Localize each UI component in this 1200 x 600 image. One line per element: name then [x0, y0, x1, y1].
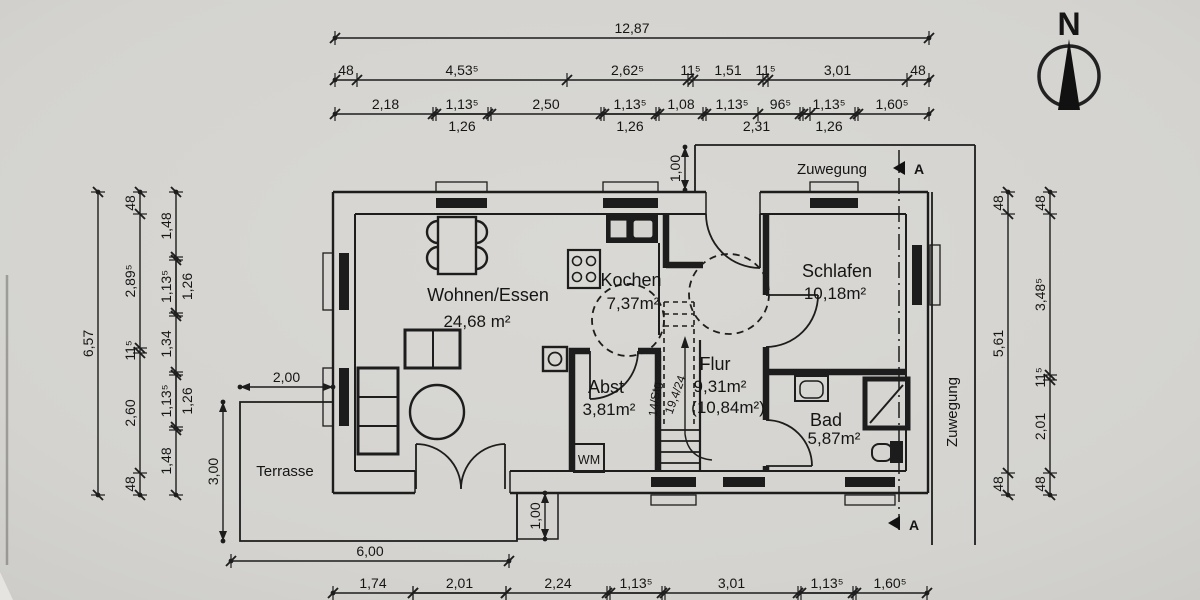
- dim-label: 1,26: [616, 118, 643, 134]
- room-label-schlafen: Schlafen: [802, 261, 872, 281]
- dim-label: 2,60: [122, 399, 138, 426]
- dim-label: 1,48: [158, 212, 174, 239]
- dim-label: 1,13⁵: [445, 96, 478, 112]
- dim-label: 11⁵: [1032, 367, 1048, 387]
- dim-label: 1,13⁵: [613, 96, 646, 112]
- dim-label: 4,53⁵: [445, 62, 478, 78]
- dim-label: 1,74: [359, 575, 386, 591]
- dim-label: 48: [990, 195, 1006, 211]
- room-area-flur: 9,31m²: [694, 377, 747, 396]
- room-label-wohnen: Wohnen/Essen: [427, 285, 549, 305]
- section-letter-top: A: [914, 161, 924, 177]
- dim-label: 48: [1032, 476, 1048, 492]
- room-area-kochen: 7,37m²: [607, 294, 660, 313]
- dim-label: 6,57: [80, 330, 96, 357]
- window-icon: [603, 198, 658, 208]
- dim-label: 2,50: [532, 96, 559, 112]
- window-icon: [912, 245, 922, 305]
- dim-label: 1,13⁵: [810, 575, 843, 591]
- dim-label: 2,00: [273, 369, 300, 385]
- dim-label: 1,13⁵: [715, 96, 748, 112]
- dim-label: 11⁵: [680, 62, 700, 78]
- dim-label: 1,13⁵: [812, 96, 845, 112]
- dim-label: 1,60⁵: [875, 96, 908, 112]
- dim-label: 2,01: [446, 575, 473, 591]
- section-letter-bottom: A: [909, 517, 919, 533]
- room-label-abst: Abst: [588, 377, 624, 397]
- dim-label: 11⁵: [755, 62, 775, 78]
- dim-label: 1,26: [448, 118, 475, 134]
- dim-label: 1,13⁵: [158, 384, 174, 417]
- room-label-flur: Flur: [700, 354, 731, 374]
- window-icon: [436, 198, 487, 208]
- dim-label: 1,13⁵: [619, 575, 652, 591]
- walkway-label-right: Zuwegung: [944, 377, 961, 447]
- dim-label: 2,31: [743, 118, 770, 134]
- dim-label: 6,00: [356, 543, 383, 559]
- dim-label: 48: [338, 62, 354, 78]
- dim-label: 48: [910, 62, 926, 78]
- window-icon: [845, 477, 895, 487]
- washing-machine-label: WM: [578, 453, 600, 467]
- dim-label: 96⁵: [770, 96, 791, 112]
- dim-label: 2,62⁵: [611, 62, 644, 78]
- dim-label: 1,26: [179, 273, 195, 300]
- dim-label: 2,18: [372, 96, 399, 112]
- kitchen-sink-icon: [633, 220, 653, 238]
- dim-label: 2,89⁵: [122, 264, 138, 297]
- room-area-bad: 5,87m²: [808, 429, 861, 448]
- dim-label: 3,00: [205, 458, 221, 485]
- room-area2-flur: (10,84m²): [691, 398, 765, 417]
- dim-label: 1,00: [527, 502, 543, 529]
- dim-label: 1,13⁵: [158, 270, 174, 303]
- dim-label: 1,48: [158, 447, 174, 474]
- dim-label: 48: [990, 476, 1006, 492]
- dim-label: 2,24: [544, 575, 571, 591]
- room-label-kochen: Kochen: [600, 270, 661, 290]
- dim-label: 1,00: [667, 155, 683, 182]
- dim-label: 5,61: [990, 330, 1006, 357]
- dim-label: 3,48⁵: [1032, 278, 1048, 311]
- floorplan-scan: { "compass": { "label": "N" }, "rooms": …: [0, 0, 1200, 600]
- dim-label: 1,60⁵: [873, 575, 906, 591]
- walkway-label-top: Zuwegung: [797, 161, 867, 178]
- dim-label: 3,01: [718, 575, 745, 591]
- dim-label: 3,01: [824, 62, 851, 78]
- dim-label: 48: [122, 195, 138, 211]
- plan-drawing: Wohnen/Essen 24,68 m² Kochen 7,37m² Abst…: [0, 0, 1200, 600]
- room-area-abst: 3,81m²: [583, 400, 636, 419]
- dim-label: 11⁵: [122, 340, 138, 360]
- dim-label: 48: [122, 476, 138, 492]
- dim-label: 2,01: [1032, 413, 1048, 440]
- window-icon: [810, 198, 858, 208]
- dim-label: 1,26: [815, 118, 842, 134]
- room-label-bad: Bad: [810, 410, 842, 430]
- terrace-label: Terrasse: [256, 463, 314, 480]
- window-icon: [339, 368, 349, 426]
- dim-label: 48: [1032, 195, 1048, 211]
- dim-label: 1,34: [158, 330, 174, 357]
- dim-label: 1,08: [667, 96, 694, 112]
- room-area-wohnen: 24,68 m²: [443, 312, 510, 331]
- window-icon: [651, 477, 696, 487]
- room-area-schlafen: 10,18m²: [804, 284, 867, 303]
- window-icon: [339, 253, 349, 310]
- north-label: N: [1057, 6, 1080, 42]
- drainer: [610, 220, 627, 238]
- dim-label: 1,26: [179, 387, 195, 414]
- dim-label: 1,51: [714, 62, 741, 78]
- window-icon: [723, 477, 765, 487]
- dim-label: 12,87: [614, 20, 649, 36]
